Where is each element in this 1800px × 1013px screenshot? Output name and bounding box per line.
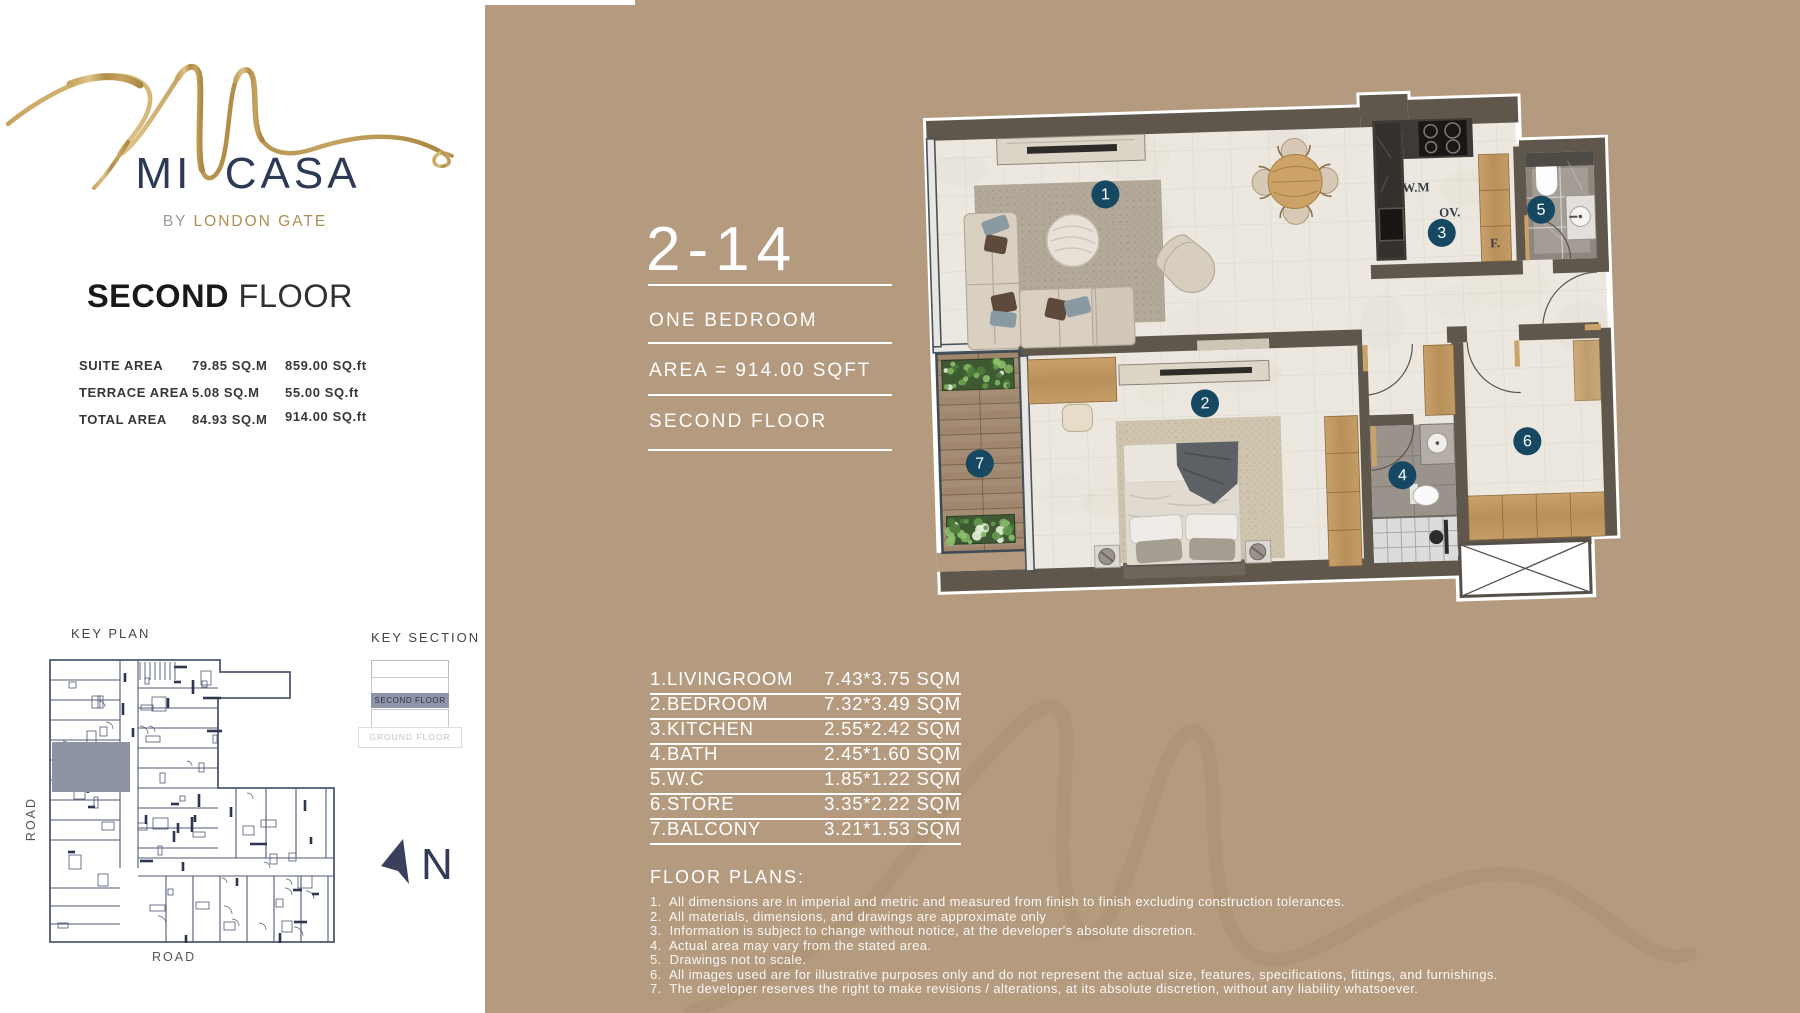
svg-text:6: 6 [1523, 433, 1533, 450]
svg-text:1: 1 [1101, 186, 1111, 203]
svg-text:F.: F. [1490, 235, 1500, 250]
svg-text:5: 5 [1536, 202, 1546, 219]
svg-text:7: 7 [975, 455, 985, 472]
svg-text:2: 2 [1200, 395, 1210, 412]
svg-text:OV.: OV. [1439, 204, 1461, 220]
svg-text:3: 3 [1437, 225, 1447, 242]
svg-text:4: 4 [1398, 467, 1408, 484]
svg-text:W.M: W.M [1402, 179, 1430, 195]
